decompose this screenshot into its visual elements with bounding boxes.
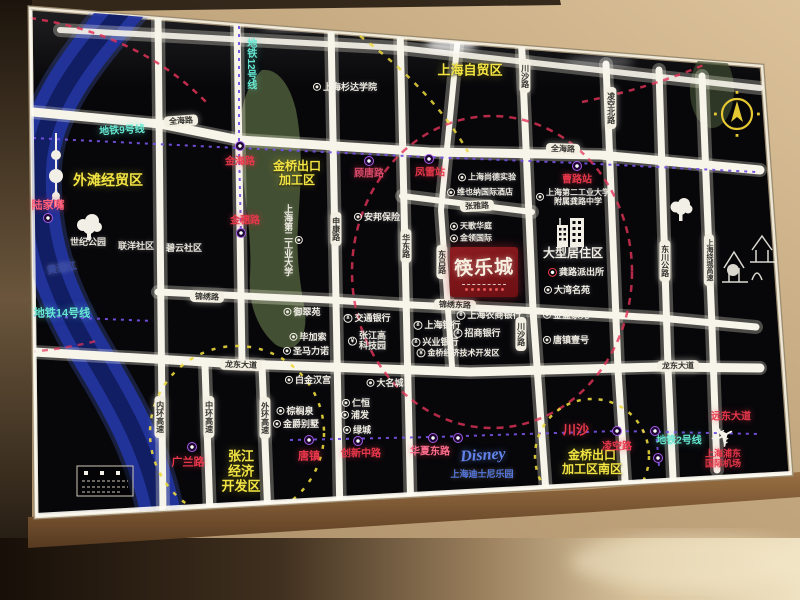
left-wall-edge [0, 0, 32, 600]
floor-glare [570, 534, 800, 590]
map-board-graphics: ✈ [0, 0, 800, 600]
photo-of-illuminated-map-board: ✈ 地铁12号线地铁9号线地铁14号线地铁2号线全海路全海路锦绣路锦绣东路龙东大… [0, 0, 800, 600]
kuailecheng-logo: 筷乐城 [450, 247, 518, 297]
lamp-glare [566, 56, 634, 68]
legend-box [77, 466, 133, 496]
logo-dots [465, 288, 504, 291]
logo-caption-line [462, 282, 506, 285]
logo-name: 筷乐城 [454, 252, 515, 281]
